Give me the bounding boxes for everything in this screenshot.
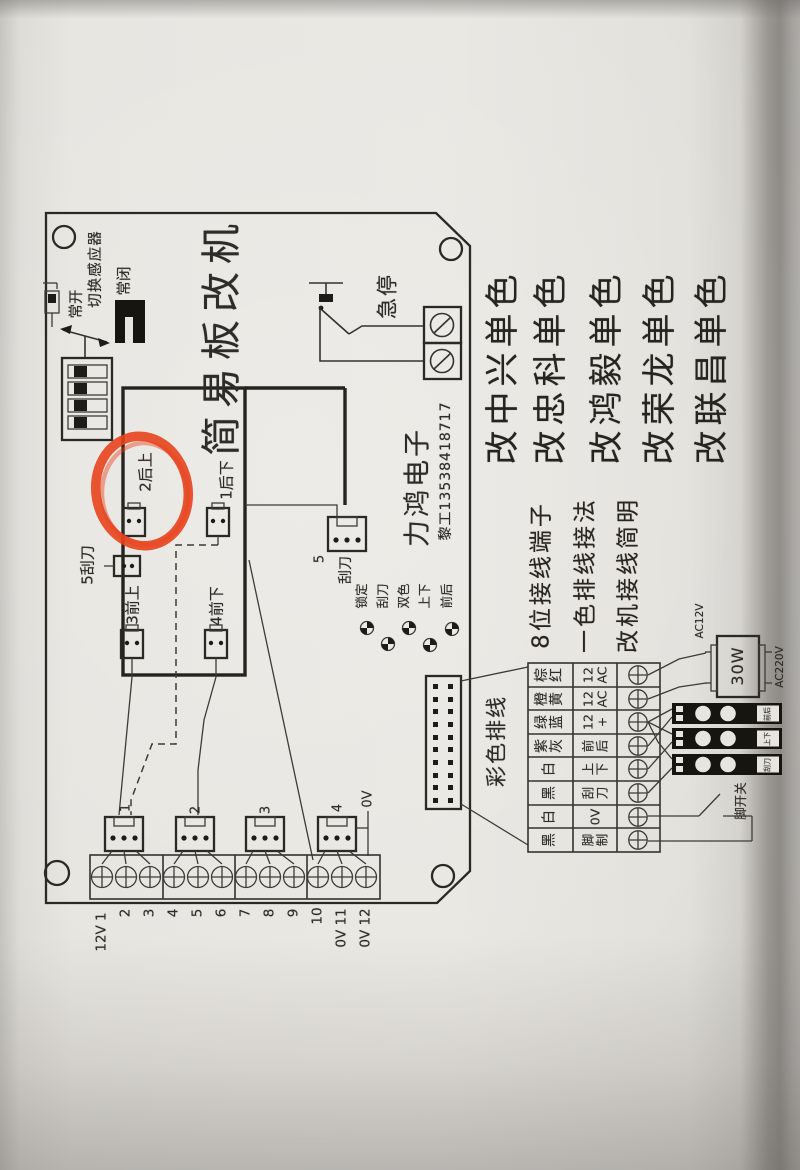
table-func-cell: 12AC [582,690,609,707]
bottom-connector-number-1: 1 [120,804,133,812]
legend-label-front-back: 前后 [441,583,454,608]
legend-label-lock: 锁定 [356,583,369,608]
note-terminal-8pos: 8位接线端子 [531,501,554,649]
photographed-wiring-diagram: 简易板改机 切换感应器 常开 常闭 急停 2后上 1后下 5刮刀 3前上 4前下… [0,0,800,1170]
terminal-label-6: 6 [215,909,229,918]
normally-open-label: 常开 [70,290,85,319]
table-color-cell: 黑 [542,833,557,847]
table-color-cell: 白 [542,762,557,776]
transformer-watt-label: 30W [730,646,746,685]
connector-label-rear-down: 1后下 [220,460,235,500]
headline-zhongxing: 改中兴单色 [486,270,520,465]
estop-terminal-block [424,307,461,379]
terminal-label-7: 7 [239,909,253,918]
legend-label-up-down: 上下 [419,583,432,608]
connector-label-rear-up: 2后上 [139,452,154,492]
bottom-connector-number-3: 3 [260,806,273,814]
connector-2-rear-up [123,503,145,536]
terminal-label-12: 0V 12 [359,908,373,947]
table-func-cell: 12AC [582,666,609,683]
transformer-output-label: AC12V [695,604,706,639]
terminal-label-2: 2 [119,909,133,918]
scraper-number-label: 5 [314,555,327,563]
estop-switch-symbol [309,283,424,361]
zero-volt-label: 0V [362,790,375,807]
table-color-cell: 棕红 [535,668,565,682]
bottom-connector-number-4: 4 [332,804,345,812]
terminal-label-4: 4 [167,909,181,918]
connector-1-rear-down [207,503,229,545]
table-color-cell: 白 [542,810,557,824]
table-func-cell: 12+ [582,714,609,730]
table-func-cell: 前后 [582,740,609,753]
estop-label: 急停 [378,273,399,319]
dip-switch [62,358,112,440]
bottom-connector-number-2: 2 [190,806,203,814]
board-title: 简易板改机 [202,216,242,456]
terminal-label-5: 5 [191,909,205,918]
terminal-label-1: 12V 1 [95,912,109,951]
headline-hongyi: 改鸿毅单色 [590,270,624,465]
terminal-label-9: 9 [287,909,301,918]
module-tag-up-down: 上下 [765,732,772,746]
table-func-cell: 刮刀 [582,787,609,800]
normally-closed-label: 常闭 [118,267,133,296]
company-name: 力鸿电子 [405,427,432,547]
ribbon-cable-label: 彩色排线 [487,695,508,787]
table-color-cell: 绿蓝 [535,715,565,729]
connector-label-front-up: 3前上 [126,585,141,625]
table-func-cell: 上下 [582,763,609,776]
scraper-connector [245,505,366,551]
connector-label-scraper-side: 5刮刀 [81,545,96,585]
module-tag-front-back: 前后 [765,707,772,721]
terminal-label-11: 0V 11 [335,908,349,947]
module-tag-scraper: 刮刀 [765,758,772,772]
scraper-label: 刮刀 [339,556,353,584]
company-contact: 黎工13538418717 [439,402,453,541]
terminal-label-10: 10 [311,907,325,924]
connector-label-front-down: 4前下 [210,586,225,626]
terminal-strip [90,855,380,899]
table-color-cell: 黑 [542,786,557,800]
transformer-input-label: AC220V [775,646,786,688]
headline-zhongke: 改忠科单色 [534,270,568,465]
headline-ronglong: 改荣龙单色 [643,270,677,465]
terminal-label-8: 8 [263,909,277,918]
legend-label-dual-color: 双色 [398,583,411,608]
selector-arrow [60,325,110,358]
note-ribbon-method: 一色排线接法 [575,497,598,653]
plug-symbol [115,300,145,344]
terminal-label-3: 3 [143,909,157,918]
headline-lianchang: 改联昌单色 [695,270,729,465]
table-color-cell: 橙黄 [535,692,565,706]
legend-marks [361,622,459,652]
table-func-cell: 脚制 [582,834,609,847]
ribbon-header [426,667,528,845]
connector-4-front-down [205,625,227,677]
table-func-cell: 0V [588,809,602,826]
sensor-label: 切换感应器 [89,230,104,308]
board-outline [45,213,470,903]
note-wiring-summary: 改机接线简明 [618,497,641,653]
foot-switch-label: 脚开关 [735,782,748,820]
legend-label-scraper: 刮刀 [377,583,390,608]
table-color-cell: 紫灰 [535,739,565,753]
